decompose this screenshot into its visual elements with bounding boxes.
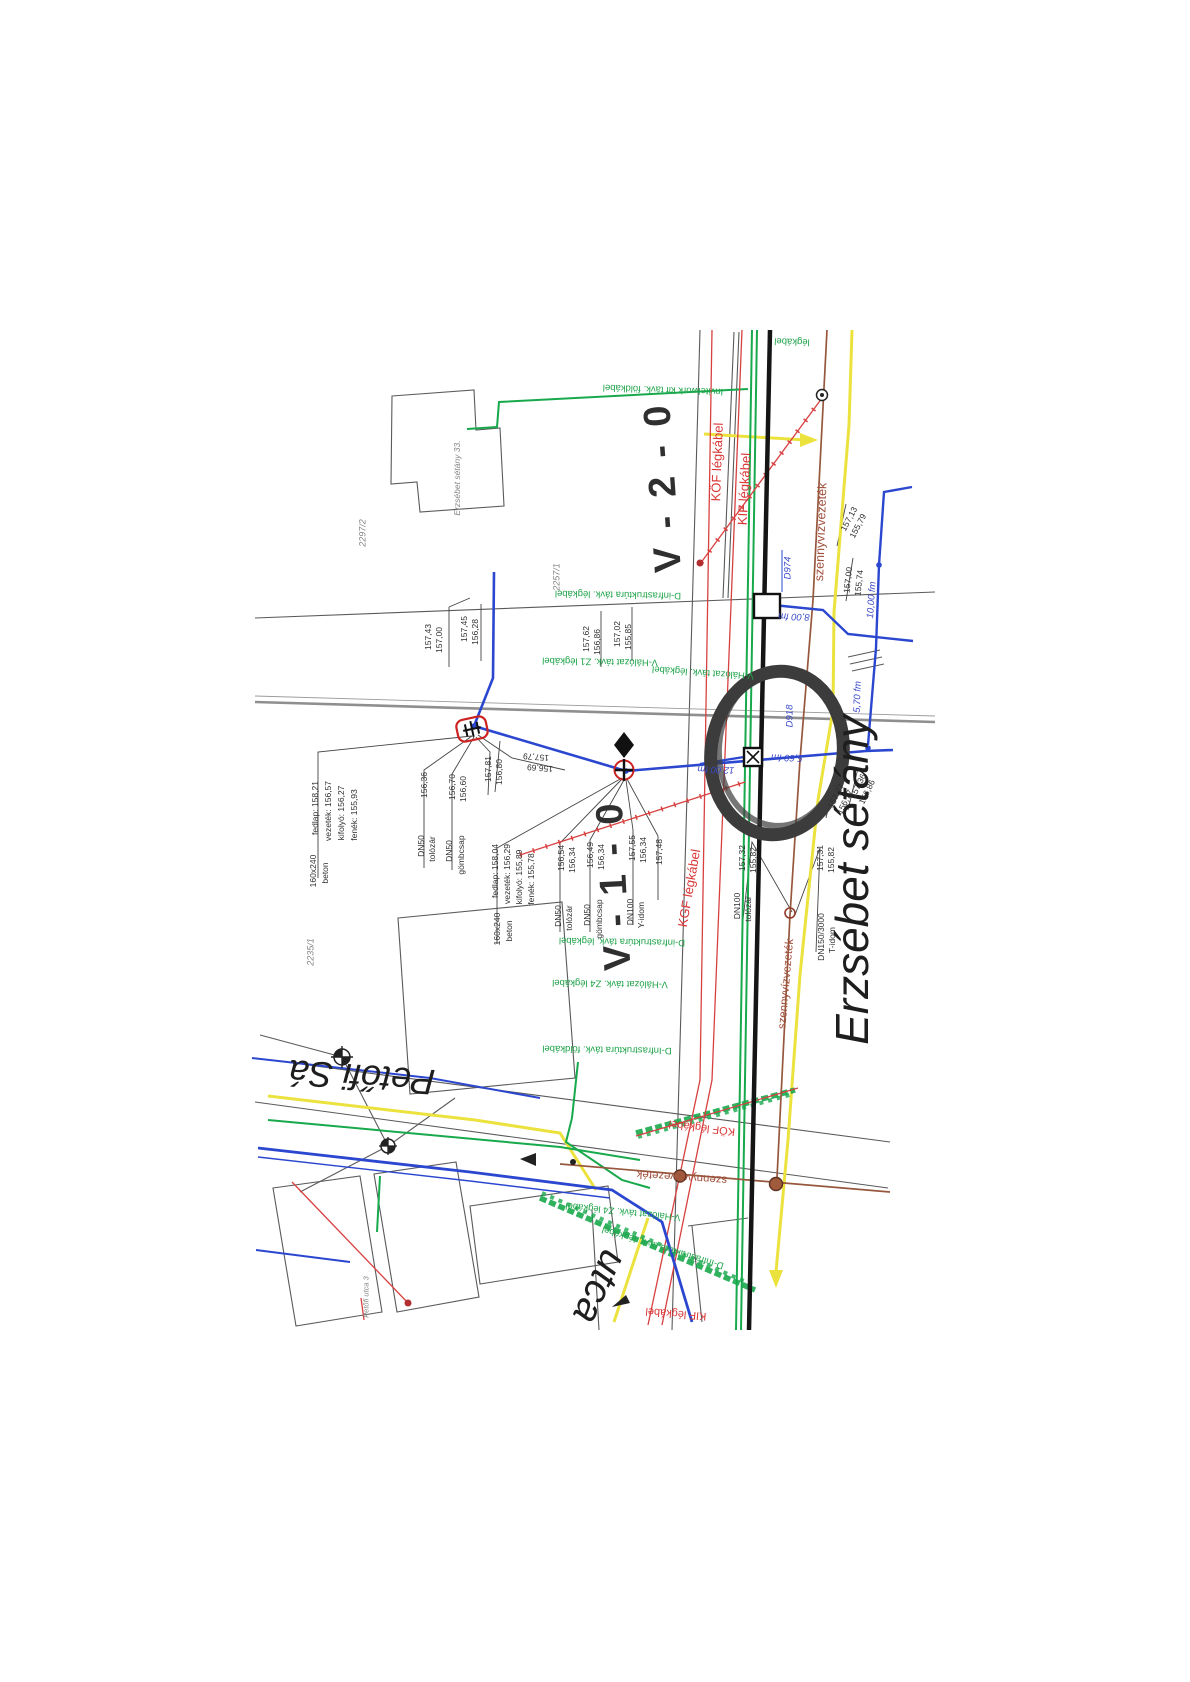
fitting-label: 156,34 — [597, 844, 606, 870]
fitting-label: beton — [321, 862, 330, 883]
fitting-label: DN100 — [733, 893, 742, 919]
building-label: Erzsébet sétány 33. — [453, 440, 462, 515]
fitting-label: gömbcsap — [595, 899, 604, 938]
elevation-label: 155,74 — [853, 570, 864, 597]
fitting-label: 155,82 — [749, 847, 758, 873]
fitting-label: T-idom — [828, 927, 837, 953]
telecom-line-label: D-infrastruktúra távk. légkábel — [559, 935, 685, 947]
street-name-utca: utca — [566, 1244, 634, 1329]
water-dim-label: 8,00 fm — [778, 611, 810, 622]
water-dim-label: 5,60 fm — [771, 752, 803, 763]
telecom-line-label: légkábel — [774, 336, 810, 347]
power-line-label: KIF légkábel — [645, 1305, 707, 1321]
telecom-line-label: Invitelwork kif távk. földkábel — [603, 382, 724, 396]
telecom-line-label: D-Infrastruktúra távk. földkábel — [542, 1043, 672, 1055]
telecom-line-label: V-Hálózat távk. Z4 légkábel — [565, 1200, 681, 1222]
elevation-label: 157,48 — [655, 839, 664, 865]
fitting-label: DN150/3000 — [817, 913, 826, 961]
fitting-label: Y-idom — [637, 902, 646, 928]
fitting-label: vezeték: 156,29 — [503, 844, 512, 904]
fitting-label: 156,34 — [568, 847, 577, 873]
marker-v-2-0: V - 2 - 0 — [638, 400, 688, 573]
elevation-label: 156,80 — [495, 759, 504, 785]
fitting-label: fedlap: 158,04 — [491, 844, 500, 898]
water-dim-label: D918 — [785, 705, 795, 728]
street-name-erzsebet-setany: Erzsébet sétány — [829, 715, 875, 1045]
fitting-label: fenék: 155,78 — [527, 853, 536, 905]
telecom-line-label: V-Hálózat távk. Z1 légkábel — [542, 655, 658, 667]
elevation-label: 157,00 — [842, 567, 853, 594]
fitting-label: DN50 — [583, 904, 592, 926]
water-dim-label: 12,00 fm — [697, 764, 734, 775]
parcel-number: 2257/1 — [553, 563, 562, 591]
scanned-utility-map-page: Erzsébet sétányPetőfi SáutcaV - 1 - 0V -… — [0, 0, 1190, 1682]
fitting-label: 157,32 — [738, 845, 747, 871]
elevation-label: 156,28 — [471, 619, 480, 645]
fitting-label: tolózár — [565, 905, 574, 931]
sewer-line-label: szennyvízvezeték — [813, 482, 829, 581]
fitting-label: beton — [505, 920, 514, 941]
elevation-label: 157,02 — [613, 621, 622, 647]
elevation-label: 157,43 — [424, 624, 433, 650]
fitting-label: fedlap: 158,21 — [311, 781, 320, 835]
fitting-label: tolózár — [744, 896, 753, 922]
fitting-label: 156,60 — [459, 776, 468, 802]
fitting-label: 156,36 — [420, 772, 429, 798]
elevation-label: 156,69 — [527, 763, 554, 773]
elevation-label: 155,85 — [624, 624, 633, 650]
fitting-label: 160x240 — [493, 913, 502, 946]
sewer-line-label: szennyvízvezeték — [777, 938, 796, 1029]
parcel-number: 2235/1 — [307, 938, 316, 966]
telecom-line-label: V-Hálózat távk. Z4 légkábel — [552, 977, 668, 989]
elevation-label: 156,86 — [593, 629, 602, 655]
water-dim-label: 10,00 fm — [866, 581, 878, 619]
fitting-label: kifolyó: 155,89 — [515, 850, 524, 905]
fitting-label: 156,70 — [448, 774, 457, 800]
fitting-label: DN100 — [626, 899, 635, 925]
elevation-label: 157,62 — [582, 626, 591, 652]
fitting-label: DN50 — [554, 905, 563, 927]
fitting-label: DN50 — [417, 835, 426, 857]
fitting-label: 156,34 — [639, 837, 648, 863]
fitting-label: vezeték: 156,57 — [324, 781, 333, 841]
power-line-label: KGF légkábel — [676, 848, 702, 928]
power-line-label: KIF légkábel — [736, 453, 753, 526]
street-name-petofi: Petőfi Sá — [288, 1054, 436, 1100]
power-line-label: KÖF légkábel — [668, 1117, 736, 1136]
water-dim-label: D974 — [783, 557, 793, 580]
fitting-label: fenék: 155,93 — [350, 789, 359, 841]
fitting-label: gömbcsap — [457, 835, 466, 874]
fitting-label: tolózár — [428, 836, 437, 862]
fitting-label: kifolyó: 156,27 — [337, 786, 346, 841]
telecom-line-label: V-Hálózat távk. légkábel — [652, 664, 754, 681]
parcel-number: 2297/2 — [359, 519, 368, 547]
fitting-label: DN50 — [445, 840, 454, 862]
water-dim-label: 5,70 fm — [853, 681, 864, 713]
fitting-label: 157,55 — [628, 835, 637, 861]
fitting-label: 157,31 — [816, 845, 825, 871]
building-label: Petőfi utca 3 — [362, 1276, 370, 1318]
power-line-label: KÖF légkábel — [709, 422, 725, 501]
map-label-layer: Erzsébet sétányPetőfi SáutcaV - 1 - 0V -… — [0, 0, 1190, 1682]
sewer-line-label: szennyvízvezeték — [636, 1167, 727, 1185]
fitting-label: 156,54 — [557, 845, 566, 871]
elevation-label: 157,45 — [460, 616, 469, 642]
fitting-label: 155,82 — [827, 847, 836, 873]
elevation-label: 157,81 — [484, 756, 493, 782]
fitting-label: 156,49 — [586, 842, 595, 868]
elevation-label: 157,00 — [435, 627, 444, 653]
fitting-label: 160x240 — [309, 855, 318, 888]
telecom-line-label: D-infrastruktúra távk. légkábel — [555, 588, 681, 600]
elevation-label: 157,79 — [523, 752, 550, 762]
